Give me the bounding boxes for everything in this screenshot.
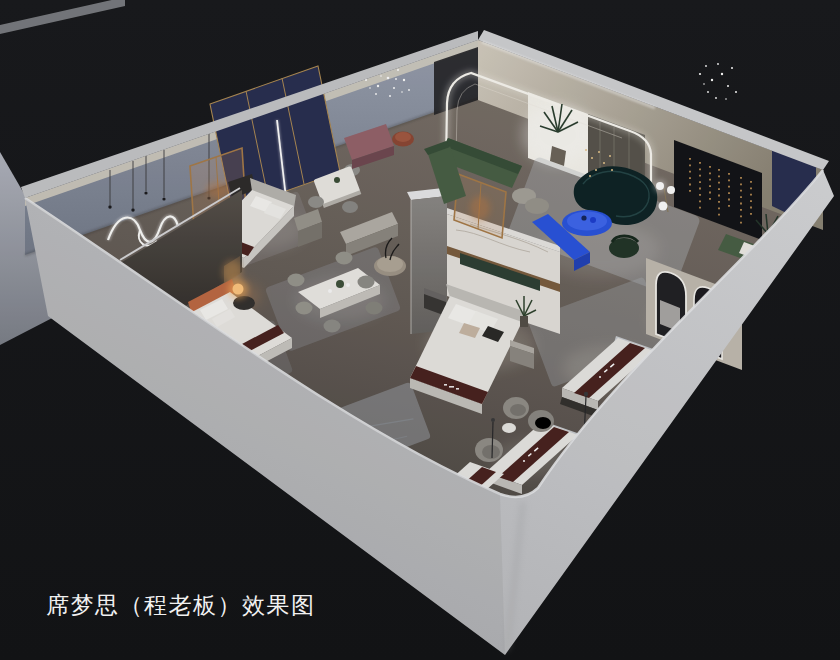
vignette (0, 0, 840, 660)
caption-text: 席梦思（程老板）效果图 (46, 590, 316, 621)
render-canvas: 席梦思（程老板）效果图 (0, 0, 840, 660)
showroom-render (0, 0, 840, 660)
